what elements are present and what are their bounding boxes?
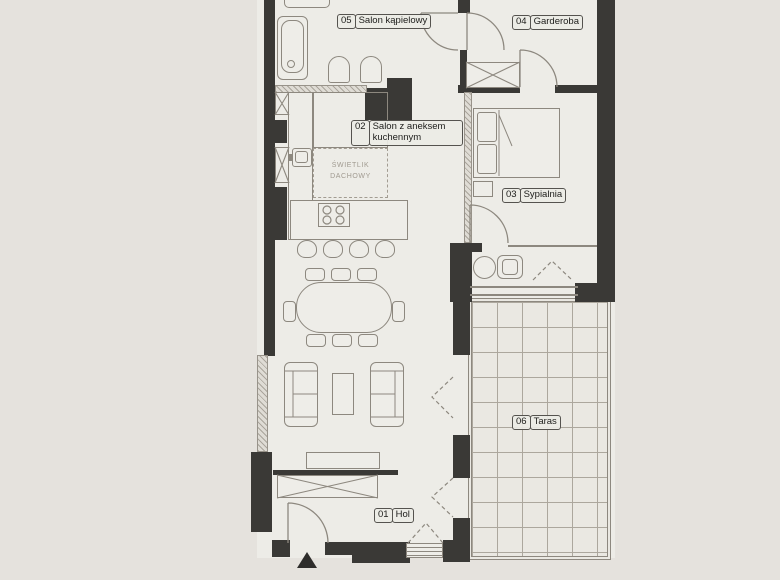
bar-stool xyxy=(375,240,395,258)
room-number: 03 xyxy=(502,188,521,203)
room-name: Garderoba xyxy=(530,15,583,30)
chimney-block xyxy=(387,78,412,120)
dining-chair xyxy=(392,301,405,322)
wall-segment xyxy=(450,243,482,252)
coffee-table xyxy=(332,373,354,415)
wall-segment xyxy=(453,435,470,478)
room-label-06: 06 Taras xyxy=(512,415,561,430)
dining-chair xyxy=(306,334,326,347)
wall-segment xyxy=(453,302,470,355)
wall-segment xyxy=(555,85,597,93)
vent-shaft xyxy=(275,147,289,183)
room-number: 04 xyxy=(512,15,531,30)
wall-segment xyxy=(264,0,275,356)
room-label-01: 01 Hol xyxy=(374,508,414,523)
glazing-line xyxy=(470,286,578,288)
wall-thin xyxy=(508,245,597,247)
shaft-block xyxy=(273,120,287,143)
room-name: Hol xyxy=(392,508,414,523)
dining-chair xyxy=(331,268,351,281)
glazing-line xyxy=(470,294,578,296)
floor-plan-canvas: ŚWIETLIK DACHOWY xyxy=(0,0,780,580)
room-number: 01 xyxy=(374,508,393,523)
room-label-03: 03 Sypialnia xyxy=(502,188,566,203)
tv-sideboard xyxy=(306,452,380,469)
terrace-table xyxy=(473,256,496,279)
wall-segment xyxy=(352,555,410,563)
wall-segment xyxy=(597,0,615,302)
wall-segment xyxy=(450,252,472,302)
room-number: 02 xyxy=(351,120,370,146)
room-number: 06 xyxy=(512,415,531,430)
room-name: Salon z aneksem kuchennym xyxy=(369,120,463,146)
doormat xyxy=(406,543,443,558)
kitchen-sink-basin xyxy=(295,151,308,163)
bar-stool xyxy=(349,240,369,258)
vent-shaft xyxy=(275,92,289,115)
wall-segment xyxy=(453,518,470,542)
nightstand xyxy=(473,181,493,197)
pillow xyxy=(477,144,497,174)
skylight-outline: ŚWIETLIK DACHOWY xyxy=(313,148,388,198)
washbasin xyxy=(328,56,350,83)
wall-segment xyxy=(325,542,410,555)
cooktop xyxy=(318,203,350,227)
sofa xyxy=(284,362,318,427)
room-label-04: 04 Garderoba xyxy=(512,15,583,30)
wall-segment xyxy=(575,283,601,302)
room-name: Salon kąpielowy xyxy=(355,14,432,29)
shaft-block xyxy=(273,187,287,240)
pillow xyxy=(477,112,497,142)
terrace-chair-seat xyxy=(502,259,518,275)
room-name: Sypialnia xyxy=(520,188,567,203)
wall-segment xyxy=(251,452,272,532)
dining-chair xyxy=(305,268,325,281)
room-label-02: 02 Salon z aneksem kuchennym xyxy=(351,120,463,146)
wall-segment xyxy=(272,540,290,557)
dining-chair xyxy=(357,268,377,281)
crossed-cabinet xyxy=(277,475,378,498)
room-label-05: 05 Salon kąpielowy xyxy=(337,14,431,29)
sofa xyxy=(370,362,404,427)
washbasin xyxy=(360,56,382,83)
wall-segment xyxy=(443,540,470,562)
dining-table xyxy=(296,282,392,333)
wardrobe xyxy=(466,62,520,88)
bar-stool xyxy=(323,240,343,258)
wall-segment xyxy=(458,0,470,13)
bar-stool xyxy=(297,240,317,258)
dining-chair xyxy=(332,334,352,347)
window-wall xyxy=(257,355,268,452)
toilet-partial xyxy=(284,0,330,8)
dining-chair xyxy=(283,301,296,322)
faucet xyxy=(288,154,293,161)
room-name: Taras xyxy=(530,415,561,430)
dining-chair xyxy=(358,334,378,347)
window-wall xyxy=(464,92,472,243)
bathtub-drain xyxy=(287,60,295,68)
skylight-label: ŚWIETLIK DACHOWY xyxy=(314,161,387,182)
room-number: 05 xyxy=(337,14,356,29)
